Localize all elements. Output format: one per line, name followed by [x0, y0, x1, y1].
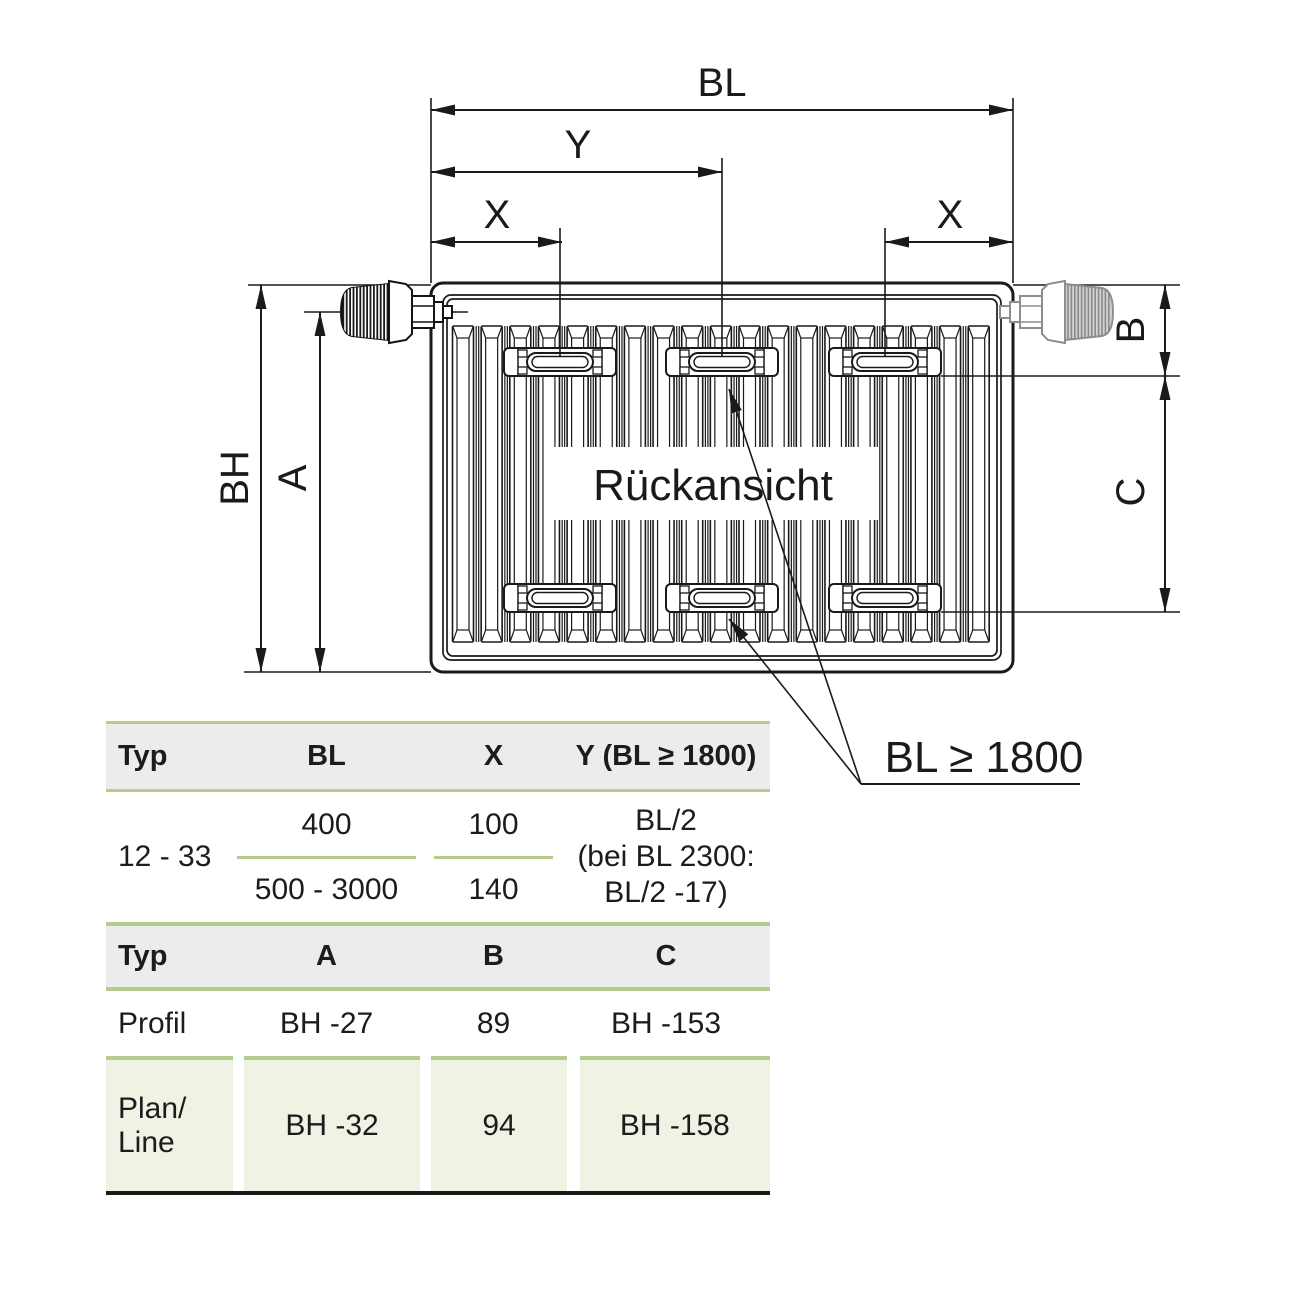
- abc-table-row-plan-line: Plan/ Line BH -32 94 BH -158: [106, 1056, 770, 1191]
- cell-c: BH -158: [580, 1056, 770, 1191]
- wall-bracket: [504, 584, 616, 612]
- placement-table-row: 12 - 33 400 500 - 3000 100 140 BL/2 (bei…: [106, 792, 770, 922]
- cell-a: BH -32: [244, 1056, 421, 1191]
- radiator-datasheet-page: BL Y X X BH A B C Rückansicht BL ≥ 1800 …: [0, 0, 1300, 1300]
- col-header-bl: BL: [228, 740, 425, 773]
- abc-table-row-profil: Profil BH -27 89 BH -153: [106, 991, 770, 1056]
- col-header-typ: Typ: [106, 740, 228, 773]
- col-header-x: X: [425, 740, 562, 773]
- cell-typ: Plan/ Line: [106, 1056, 233, 1191]
- placement-table-header: Typ BL X Y (BL ≥ 1800): [106, 724, 770, 789]
- cell-typ-line2: Line: [118, 1126, 233, 1160]
- table-bottom-rule: [106, 1191, 770, 1195]
- dim-label-y: Y: [565, 123, 592, 167]
- col-header-c: C: [562, 940, 770, 973]
- cell-y-line2: (bei BL 2300:: [562, 839, 770, 875]
- wall-bracket: [666, 584, 778, 612]
- abc-table-header: Typ A B C: [106, 926, 770, 987]
- rear-view-label: Rückansicht: [593, 461, 833, 510]
- cell-x-bottom: 140: [425, 859, 562, 921]
- cell-bl-bottom: 500 - 3000: [228, 859, 425, 921]
- cell-c: BH -153: [562, 1007, 770, 1041]
- dim-label-x-left: X: [484, 193, 511, 237]
- cell-y-line3: BL/2 -17): [562, 875, 770, 911]
- col-header-y: Y (BL ≥ 1800): [562, 740, 770, 773]
- cell-y-line1: BL/2: [562, 803, 770, 839]
- col-header-b: B: [425, 940, 562, 973]
- cell-b: 94: [431, 1056, 566, 1191]
- cell-b: 89: [425, 1007, 562, 1041]
- wall-bracket: [829, 584, 941, 612]
- cell-typ: Profil: [106, 1007, 228, 1041]
- col-header-a: A: [228, 940, 425, 973]
- cell-x: 100 140: [425, 792, 562, 922]
- bracket-note-label: BL ≥ 1800: [885, 733, 1084, 782]
- dim-label-b: B: [1109, 317, 1153, 344]
- valve-right-icon: [1000, 280, 1113, 344]
- cell-y: BL/2 (bei BL 2300: BL/2 -17): [562, 792, 770, 922]
- dim-label-a: A: [271, 464, 315, 491]
- dimension-tables: Typ BL X Y (BL ≥ 1800) 12 - 33 400 500 -…: [106, 721, 770, 1195]
- cell-bl-top: 400: [228, 794, 425, 856]
- col-header-typ: Typ: [106, 940, 228, 973]
- cell-typ: 12 - 33: [106, 792, 228, 922]
- cell-typ-line1: Plan/: [118, 1092, 233, 1126]
- cell-x-top: 100: [425, 794, 562, 856]
- cell-a: BH -27: [228, 1007, 425, 1041]
- dim-label-bh: BH: [213, 450, 257, 506]
- dim-label-c: C: [1109, 478, 1153, 507]
- dim-label-x-right: X: [937, 193, 964, 237]
- dim-label-bl: BL: [698, 61, 747, 105]
- cell-bl: 400 500 - 3000: [228, 792, 425, 922]
